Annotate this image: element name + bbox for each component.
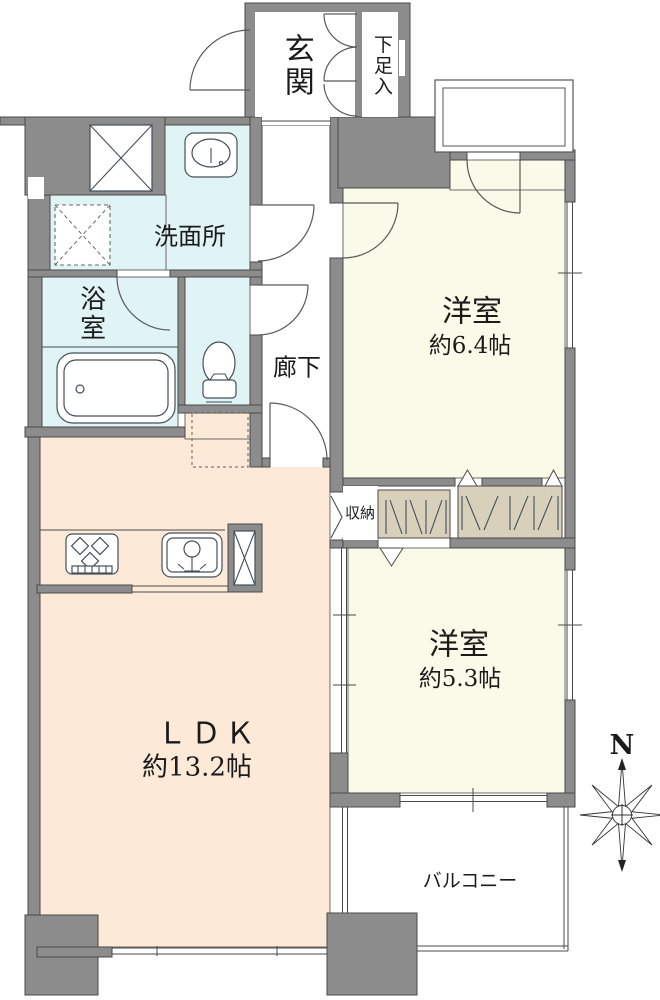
front-door-arc bbox=[190, 30, 250, 90]
hallway-label: 廊下 bbox=[273, 355, 321, 380]
balcony-label: バルコニー bbox=[423, 872, 518, 892]
pipe-space-icon bbox=[90, 125, 152, 191]
washer-space-icon bbox=[55, 205, 110, 265]
kitchen-pipe-space-icon bbox=[228, 524, 262, 592]
storage-label: 収納 bbox=[345, 506, 375, 522]
room-ldk-floor bbox=[40, 437, 330, 947]
stove-icon bbox=[66, 534, 118, 574]
floorplan-drawing bbox=[0, 0, 660, 1000]
service-porch bbox=[435, 80, 573, 152]
washbasin-icon bbox=[185, 133, 237, 177]
bedroom1-size: 約6.4帖 bbox=[429, 334, 512, 358]
genkan-label: 玄関 bbox=[280, 33, 312, 99]
bedroom2-size: 約5.3帖 bbox=[419, 667, 502, 691]
bedroom2-label: 洋室 bbox=[429, 629, 489, 661]
compass-north-label: N bbox=[610, 732, 635, 760]
washroom-label: 洗面所 bbox=[154, 224, 226, 249]
bedroom1-label: 洋室 bbox=[442, 296, 502, 328]
ldk-balcony-sash bbox=[343, 807, 348, 913]
closet-a bbox=[378, 490, 450, 538]
bathroom-label: 浴室 bbox=[76, 285, 103, 343]
storage-bifold-icon bbox=[331, 496, 342, 538]
ldk-size: 約13.2帖 bbox=[142, 754, 252, 781]
toilet-icon bbox=[203, 342, 236, 402]
room-hallway-floor bbox=[262, 113, 330, 467]
compass-icon bbox=[580, 758, 660, 872]
bathtub-icon bbox=[57, 353, 175, 423]
ldk-label: ＬＤＫ bbox=[157, 718, 259, 750]
ldk-bottom-window bbox=[112, 946, 327, 956]
kitchen-sink-icon bbox=[162, 533, 222, 577]
floorplan-canvas: 玄関 下足入 洗面所 浴室 廊下 洋室 約6.4帖 収納 洋室 約5.3帖 ＬＤ… bbox=[0, 0, 660, 1000]
room-ldk-floor-upper bbox=[185, 413, 250, 439]
shoe-cabinet-label: 下足入 bbox=[371, 35, 391, 98]
